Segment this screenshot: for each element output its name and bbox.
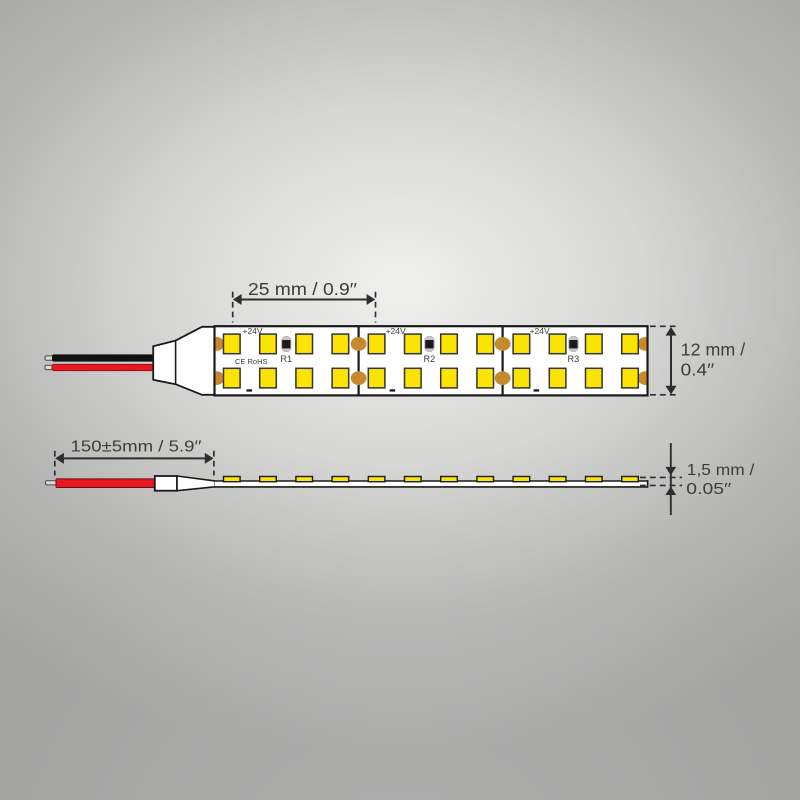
svg-text:CE RoHS: CE RoHS xyxy=(235,357,268,366)
svg-text:+24V: +24V xyxy=(530,326,550,336)
svg-text:25 mm / 0.9′′: 25 mm / 0.9′′ xyxy=(248,279,357,299)
svg-text:0.4′′: 0.4′′ xyxy=(681,359,715,379)
svg-text:R2: R2 xyxy=(424,354,436,364)
svg-text:0.05′′: 0.05′′ xyxy=(686,481,731,498)
svg-text:R3: R3 xyxy=(568,354,580,364)
svg-text:1,5 mm /: 1,5 mm / xyxy=(687,462,755,479)
svg-text:+24V: +24V xyxy=(386,326,406,336)
svg-text:R1: R1 xyxy=(280,354,292,364)
svg-text:12 mm /: 12 mm / xyxy=(681,340,746,360)
svg-text:150±5mm / 5.9′′: 150±5mm / 5.9′′ xyxy=(71,438,202,455)
svg-text:+24V: +24V xyxy=(243,326,263,336)
